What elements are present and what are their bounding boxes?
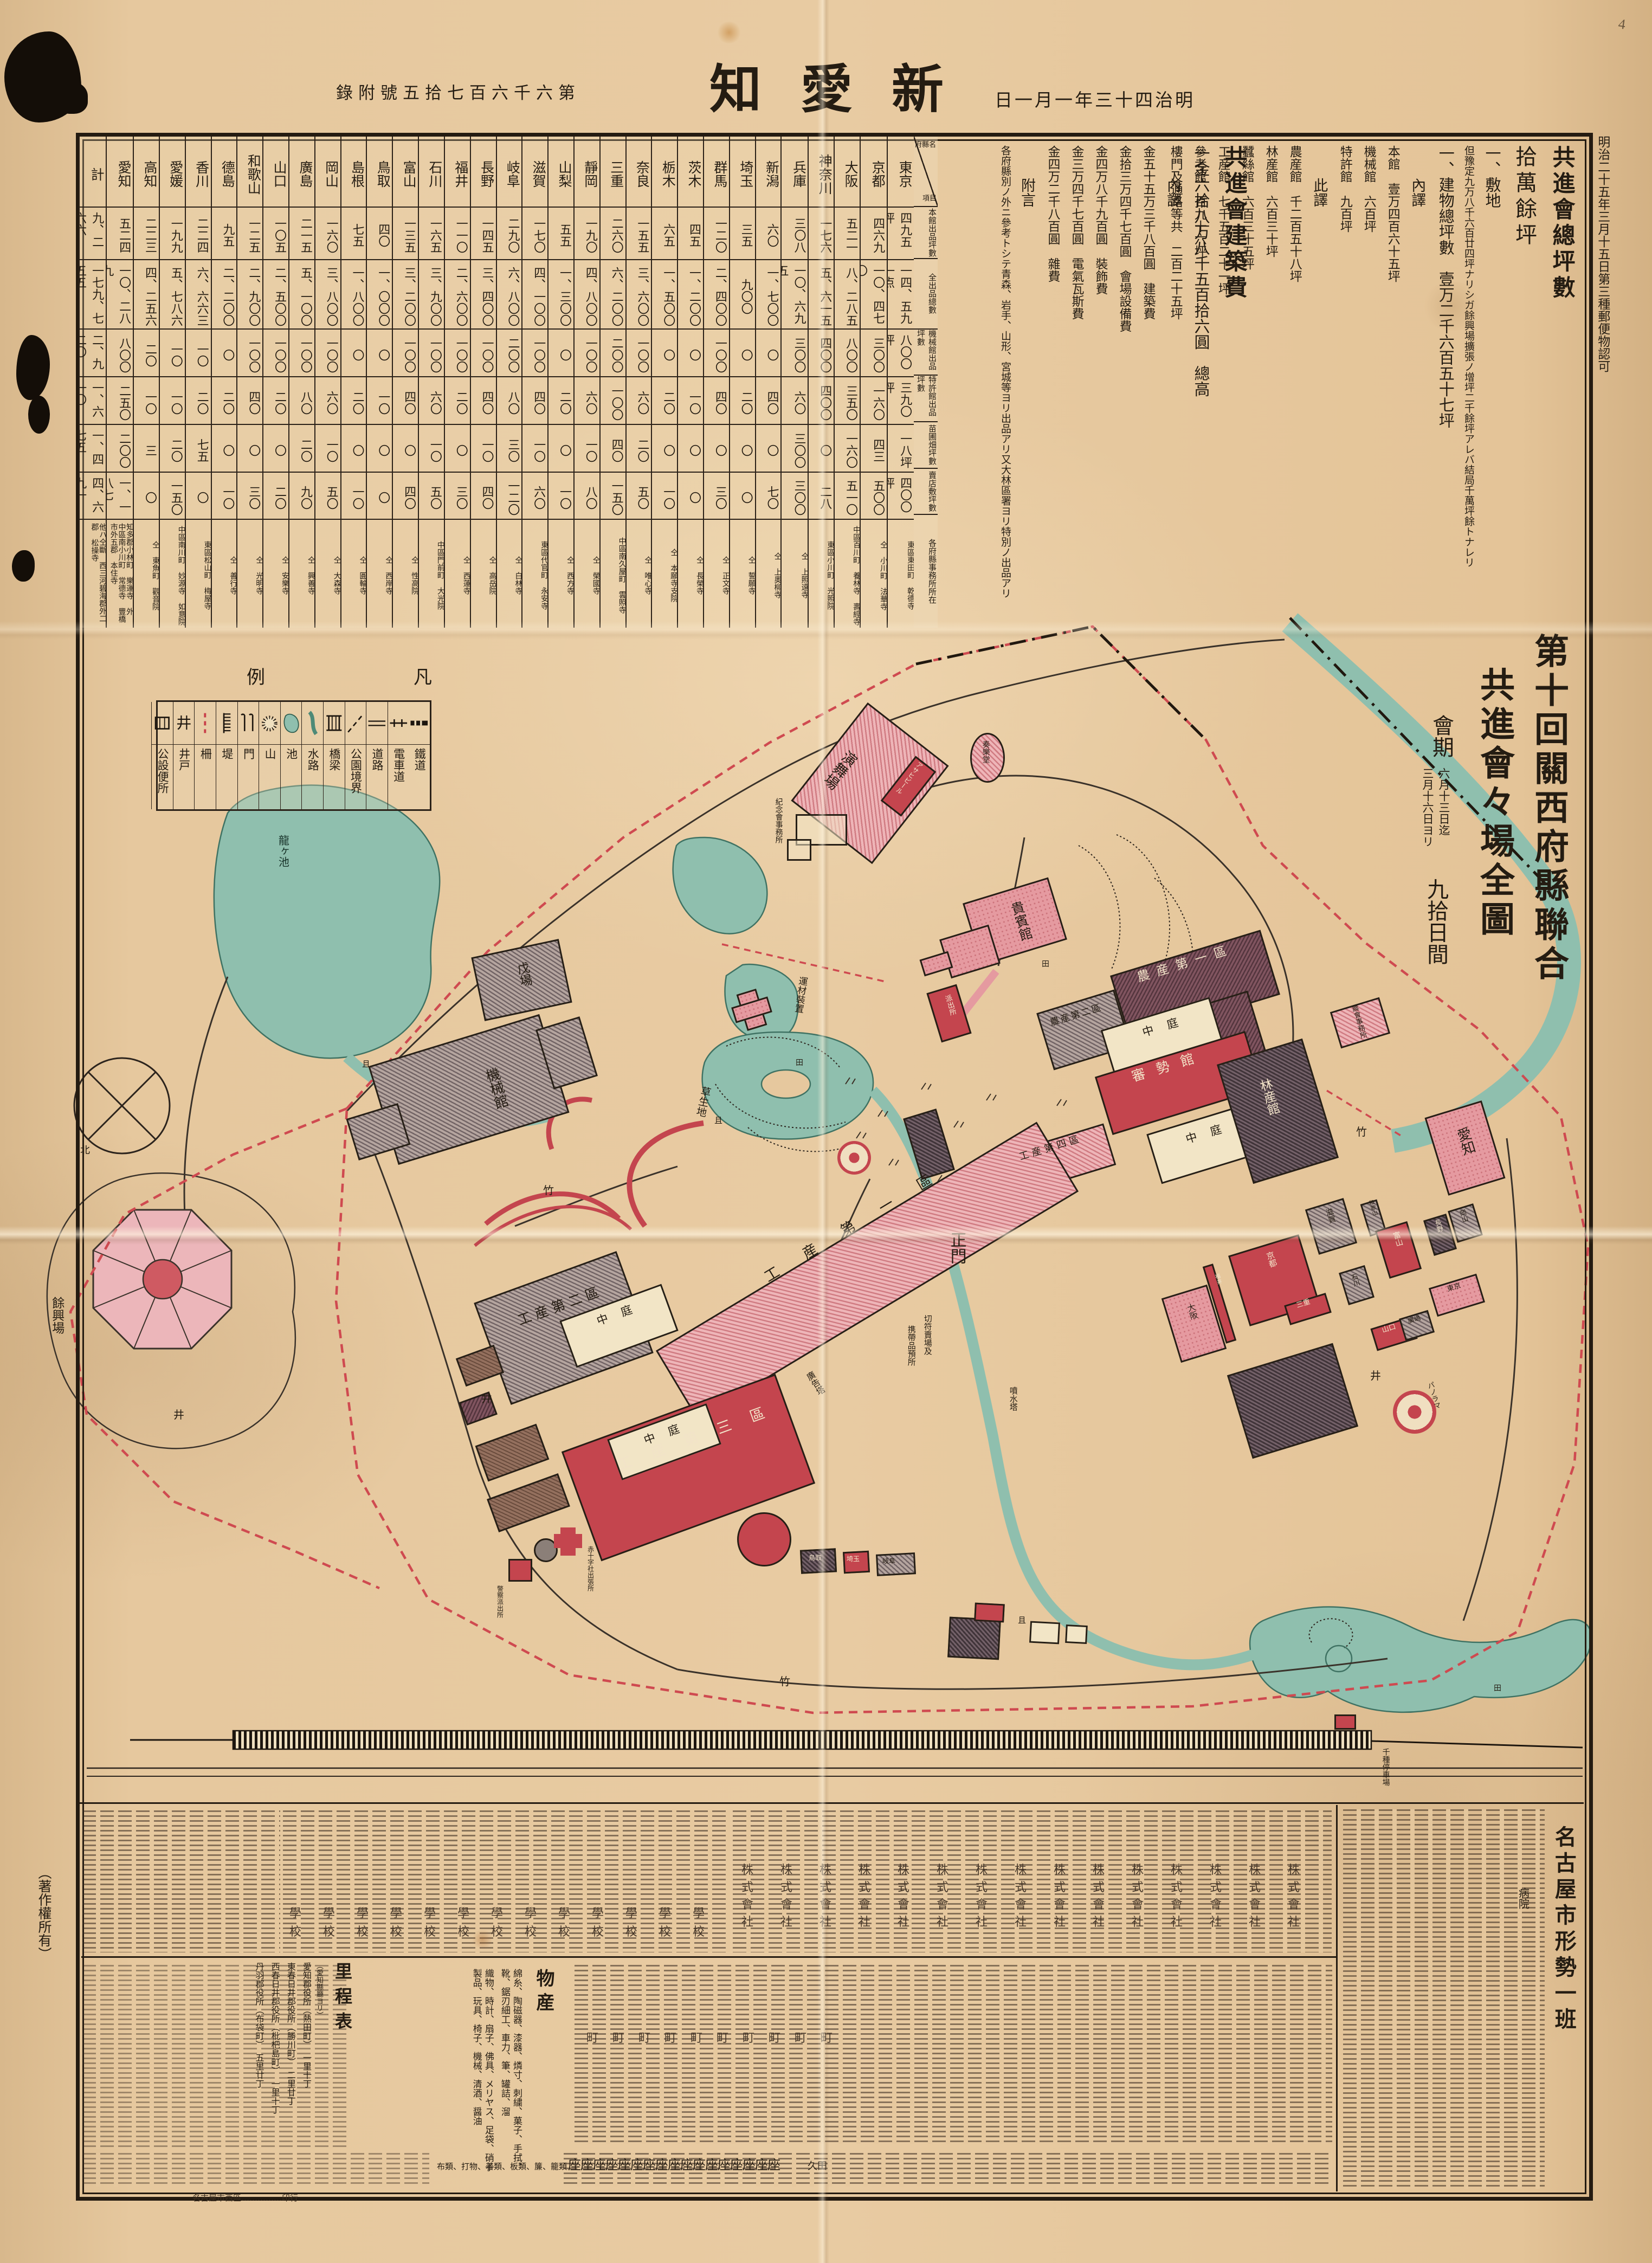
- distance-table-note: （愛知縣廳ヨリ）: [314, 1962, 325, 2179]
- school-name-suffix: 學: [289, 1904, 301, 1921]
- school-name-suffix: 學: [390, 1904, 402, 1921]
- town-name-suffix: 町: [743, 2028, 754, 2046]
- products-line: 綿糸、陶磁器、漆器、燐寸、刺繍、菓子、手拭、靴、鋸刃細工、車力、筆、罐詰、溜: [499, 1969, 522, 2175]
- company-name-suffix: 株: [1015, 1860, 1027, 1878]
- company-name-suffix: 社: [976, 1912, 988, 1930]
- company-name-suffix: 會: [898, 1895, 909, 1912]
- school-name-suffix: 校: [625, 1922, 637, 1939]
- theater-name-suffix: 座: [568, 2158, 581, 2173]
- company-name-suffix: 會: [1288, 1895, 1300, 1912]
- company-name-suffix: 株: [898, 1860, 909, 1878]
- company-name-suffix: 式: [1249, 1878, 1261, 1895]
- school-name-suffix: 校: [390, 1922, 402, 1939]
- company-name-suffix: 式: [780, 1878, 792, 1895]
- newspaper-supplement-sheet: 知愛新 日一月一年三十四治明 錄附號五拾七百六千六第 明治二十五年三月十五日第三…: [0, 0, 1652, 2263]
- theater-name-suffix: 座: [605, 2158, 618, 2173]
- distance-entry: 東春日井郡役所（勝川町） 二里廿丁: [285, 1962, 295, 2179]
- company-name-suffix: 會: [1093, 1895, 1105, 1912]
- theater-name-suffix: 座: [730, 2158, 743, 2173]
- theater-name-suffix: 座: [593, 2158, 606, 2173]
- school-name-suffix: 校: [693, 1922, 705, 1939]
- company-name-suffix: 會: [1015, 1895, 1027, 1912]
- town-name-suffix: 町: [664, 2028, 676, 2046]
- company-name-suffix: 式: [898, 1878, 909, 1895]
- company-name-suffix: 會: [780, 1895, 792, 1912]
- company-name-suffix: 株: [1210, 1860, 1222, 1878]
- school-name-suffix: 學: [457, 1904, 469, 1921]
- theater-name-suffix: 座: [580, 2158, 593, 2173]
- misc-goods-line: 布類、打物、着類、板類、簾、籠類: [437, 2163, 567, 2172]
- school-name-suffix: 校: [357, 1922, 369, 1939]
- theater-name-suffix: 座: [680, 2158, 693, 2173]
- theater-name-suffix: 座: [655, 2158, 668, 2173]
- company-name-suffix: 式: [1015, 1878, 1027, 1895]
- theater-name-suffix: 座: [668, 2158, 681, 2173]
- theater-name-suffix: 座: [718, 2158, 731, 2173]
- company-name-suffix: 式: [976, 1878, 988, 1895]
- theater-name-suffix: 座: [618, 2158, 631, 2173]
- school-name-suffix: 學: [659, 1904, 671, 1921]
- distance-entry: 西春日井郡役所（枇杷島町） 一里十丁: [269, 1962, 279, 2179]
- school-name-suffix: 學: [357, 1904, 369, 1921]
- ink-blot-small: [12, 550, 35, 582]
- company-name-suffix: 社: [1093, 1912, 1105, 1930]
- company-name-suffix: 式: [1132, 1878, 1144, 1895]
- school-name-suffix: 校: [424, 1922, 436, 1939]
- company-name-suffix: 社: [1054, 1912, 1066, 1930]
- theater-name-suffix: 座: [755, 2158, 768, 2173]
- theater-name-suffix: 座: [630, 2158, 643, 2173]
- distance-entry: 丹羽郡役所（布袋町） 五里廿丁: [253, 1962, 263, 2179]
- company-name-suffix: 株: [1288, 1860, 1300, 1878]
- company-name-suffix: 株: [1054, 1860, 1066, 1878]
- copyright-note: （著作權所有）: [36, 1866, 51, 1961]
- company-name-suffix: 株: [1171, 1860, 1183, 1878]
- company-name-suffix: 株: [859, 1860, 870, 1878]
- company-name-suffix: 會: [937, 1895, 948, 1912]
- imprint-line: 名古屋市西區……………印行: [192, 2194, 298, 2203]
- town-name-suffix: 町: [691, 2028, 702, 2046]
- company-name-suffix: 式: [1210, 1878, 1222, 1895]
- town-name-suffix: 町: [717, 2028, 728, 2046]
- company-name-suffix: 株: [1093, 1860, 1105, 1878]
- distance-table-heading: 里程表: [330, 1962, 355, 2179]
- company-name-suffix: 社: [1132, 1912, 1144, 1930]
- company-name-suffix: 社: [1288, 1912, 1300, 1930]
- theater-name-suffix: 座: [767, 2158, 780, 2173]
- products-section: 物産綿糸、陶磁器、漆器、燐寸、刺繍、菓子、手拭、靴、鋸刃細工、車力、筆、罐詰、溜…: [360, 1969, 557, 2175]
- company-name-suffix: 會: [1249, 1895, 1261, 1912]
- theater-name-suffix: 座: [693, 2158, 706, 2173]
- ink-blot-drip-b: [28, 396, 50, 434]
- paper-stain-2: [472, 1930, 493, 1949]
- company-name-suffix: 社: [1249, 1912, 1261, 1930]
- company-name-suffix: 社: [1210, 1912, 1222, 1930]
- company-name-suffix: 會: [1054, 1895, 1066, 1912]
- town-name-suffix: 町: [795, 2028, 806, 2046]
- company-name-suffix: 社: [1171, 1912, 1183, 1930]
- school-name-suffix: 學: [625, 1904, 637, 1921]
- company-name-suffix: 社: [898, 1912, 909, 1930]
- city-overview-heading: 名古屋市形勢一班: [1551, 1826, 1576, 2034]
- company-name-suffix: 株: [1249, 1860, 1261, 1878]
- school-name-suffix: 學: [424, 1904, 436, 1921]
- town-name-suffix: 町: [612, 2028, 624, 2046]
- school-name-suffix: 學: [693, 1904, 705, 1921]
- school-name-suffix: 校: [289, 1922, 301, 1939]
- company-name-suffix: 社: [859, 1912, 870, 1930]
- products-heading: 物産: [530, 1969, 557, 2175]
- paper-stain: [717, 22, 741, 43]
- company-name-suffix: 會: [859, 1895, 870, 1912]
- company-name-suffix: 會: [1210, 1895, 1222, 1912]
- city-overview-subhead: 病院: [1517, 1887, 1528, 1909]
- distance-entry: 愛知郡役所（熱田町） 一里十丁: [301, 1962, 311, 2179]
- company-name-suffix: 會: [976, 1895, 988, 1912]
- school-name-suffix: 學: [558, 1904, 570, 1921]
- theater-name-suffix: 座: [643, 2158, 656, 2173]
- town-name-suffix: 町: [769, 2028, 780, 2046]
- vertical-fold-crease: [817, 0, 829, 2263]
- school-name-suffix: 校: [457, 1922, 469, 1939]
- company-name-suffix: 社: [937, 1912, 948, 1930]
- school-name-suffix: 校: [323, 1922, 335, 1939]
- theater-name-suffix: 座: [743, 2158, 756, 2173]
- company-name-suffix: 式: [1093, 1878, 1105, 1895]
- company-name-suffix: 社: [1015, 1912, 1027, 1930]
- company-name-suffix: 式: [1171, 1878, 1183, 1895]
- company-name-suffix: 式: [937, 1878, 948, 1895]
- school-name-suffix: 學: [491, 1904, 503, 1921]
- company-name-suffix: 株: [976, 1860, 988, 1878]
- company-name-suffix: 式: [1054, 1878, 1066, 1895]
- company-name-suffix: 株: [937, 1860, 948, 1878]
- school-name-suffix: 校: [592, 1922, 604, 1939]
- company-name-suffix: 式: [741, 1878, 753, 1895]
- company-name-suffix: 株: [1132, 1860, 1144, 1878]
- school-name-suffix: 學: [525, 1904, 537, 1921]
- school-name-suffix: 校: [558, 1922, 570, 1939]
- school-name-suffix: 學: [592, 1904, 604, 1921]
- company-name-suffix: 社: [741, 1912, 753, 1930]
- company-name-suffix: 會: [1171, 1895, 1183, 1912]
- distance-table-section: 里程表（愛知縣廳ヨリ）愛知郡役所（熱田町） 一里十丁東春日井郡役所（勝川町） 二…: [81, 1962, 355, 2179]
- school-name-suffix: 校: [659, 1922, 671, 1939]
- products-line: 織物、時計、扇子、佛具、メリヤス、足袋、硝子製品、玩具、椅子、機械、清酒、醤油: [470, 1969, 494, 2175]
- company-name-suffix: 會: [741, 1895, 753, 1912]
- company-name-suffix: 株: [780, 1860, 792, 1878]
- town-name-suffix: 町: [586, 2028, 598, 2046]
- company-name-suffix: 株: [741, 1860, 753, 1878]
- paper-stain-3: [1420, 282, 1485, 331]
- company-name-suffix: 式: [1288, 1878, 1300, 1895]
- company-name-suffix: 社: [780, 1912, 792, 1930]
- school-name-suffix: 學: [323, 1904, 335, 1921]
- school-name-suffix: 校: [525, 1922, 537, 1939]
- town-name-suffix: 町: [638, 2028, 650, 2046]
- theater-name-suffix: 座: [705, 2158, 718, 2173]
- company-name-suffix: 會: [1132, 1895, 1144, 1912]
- company-name-suffix: 式: [859, 1878, 870, 1895]
